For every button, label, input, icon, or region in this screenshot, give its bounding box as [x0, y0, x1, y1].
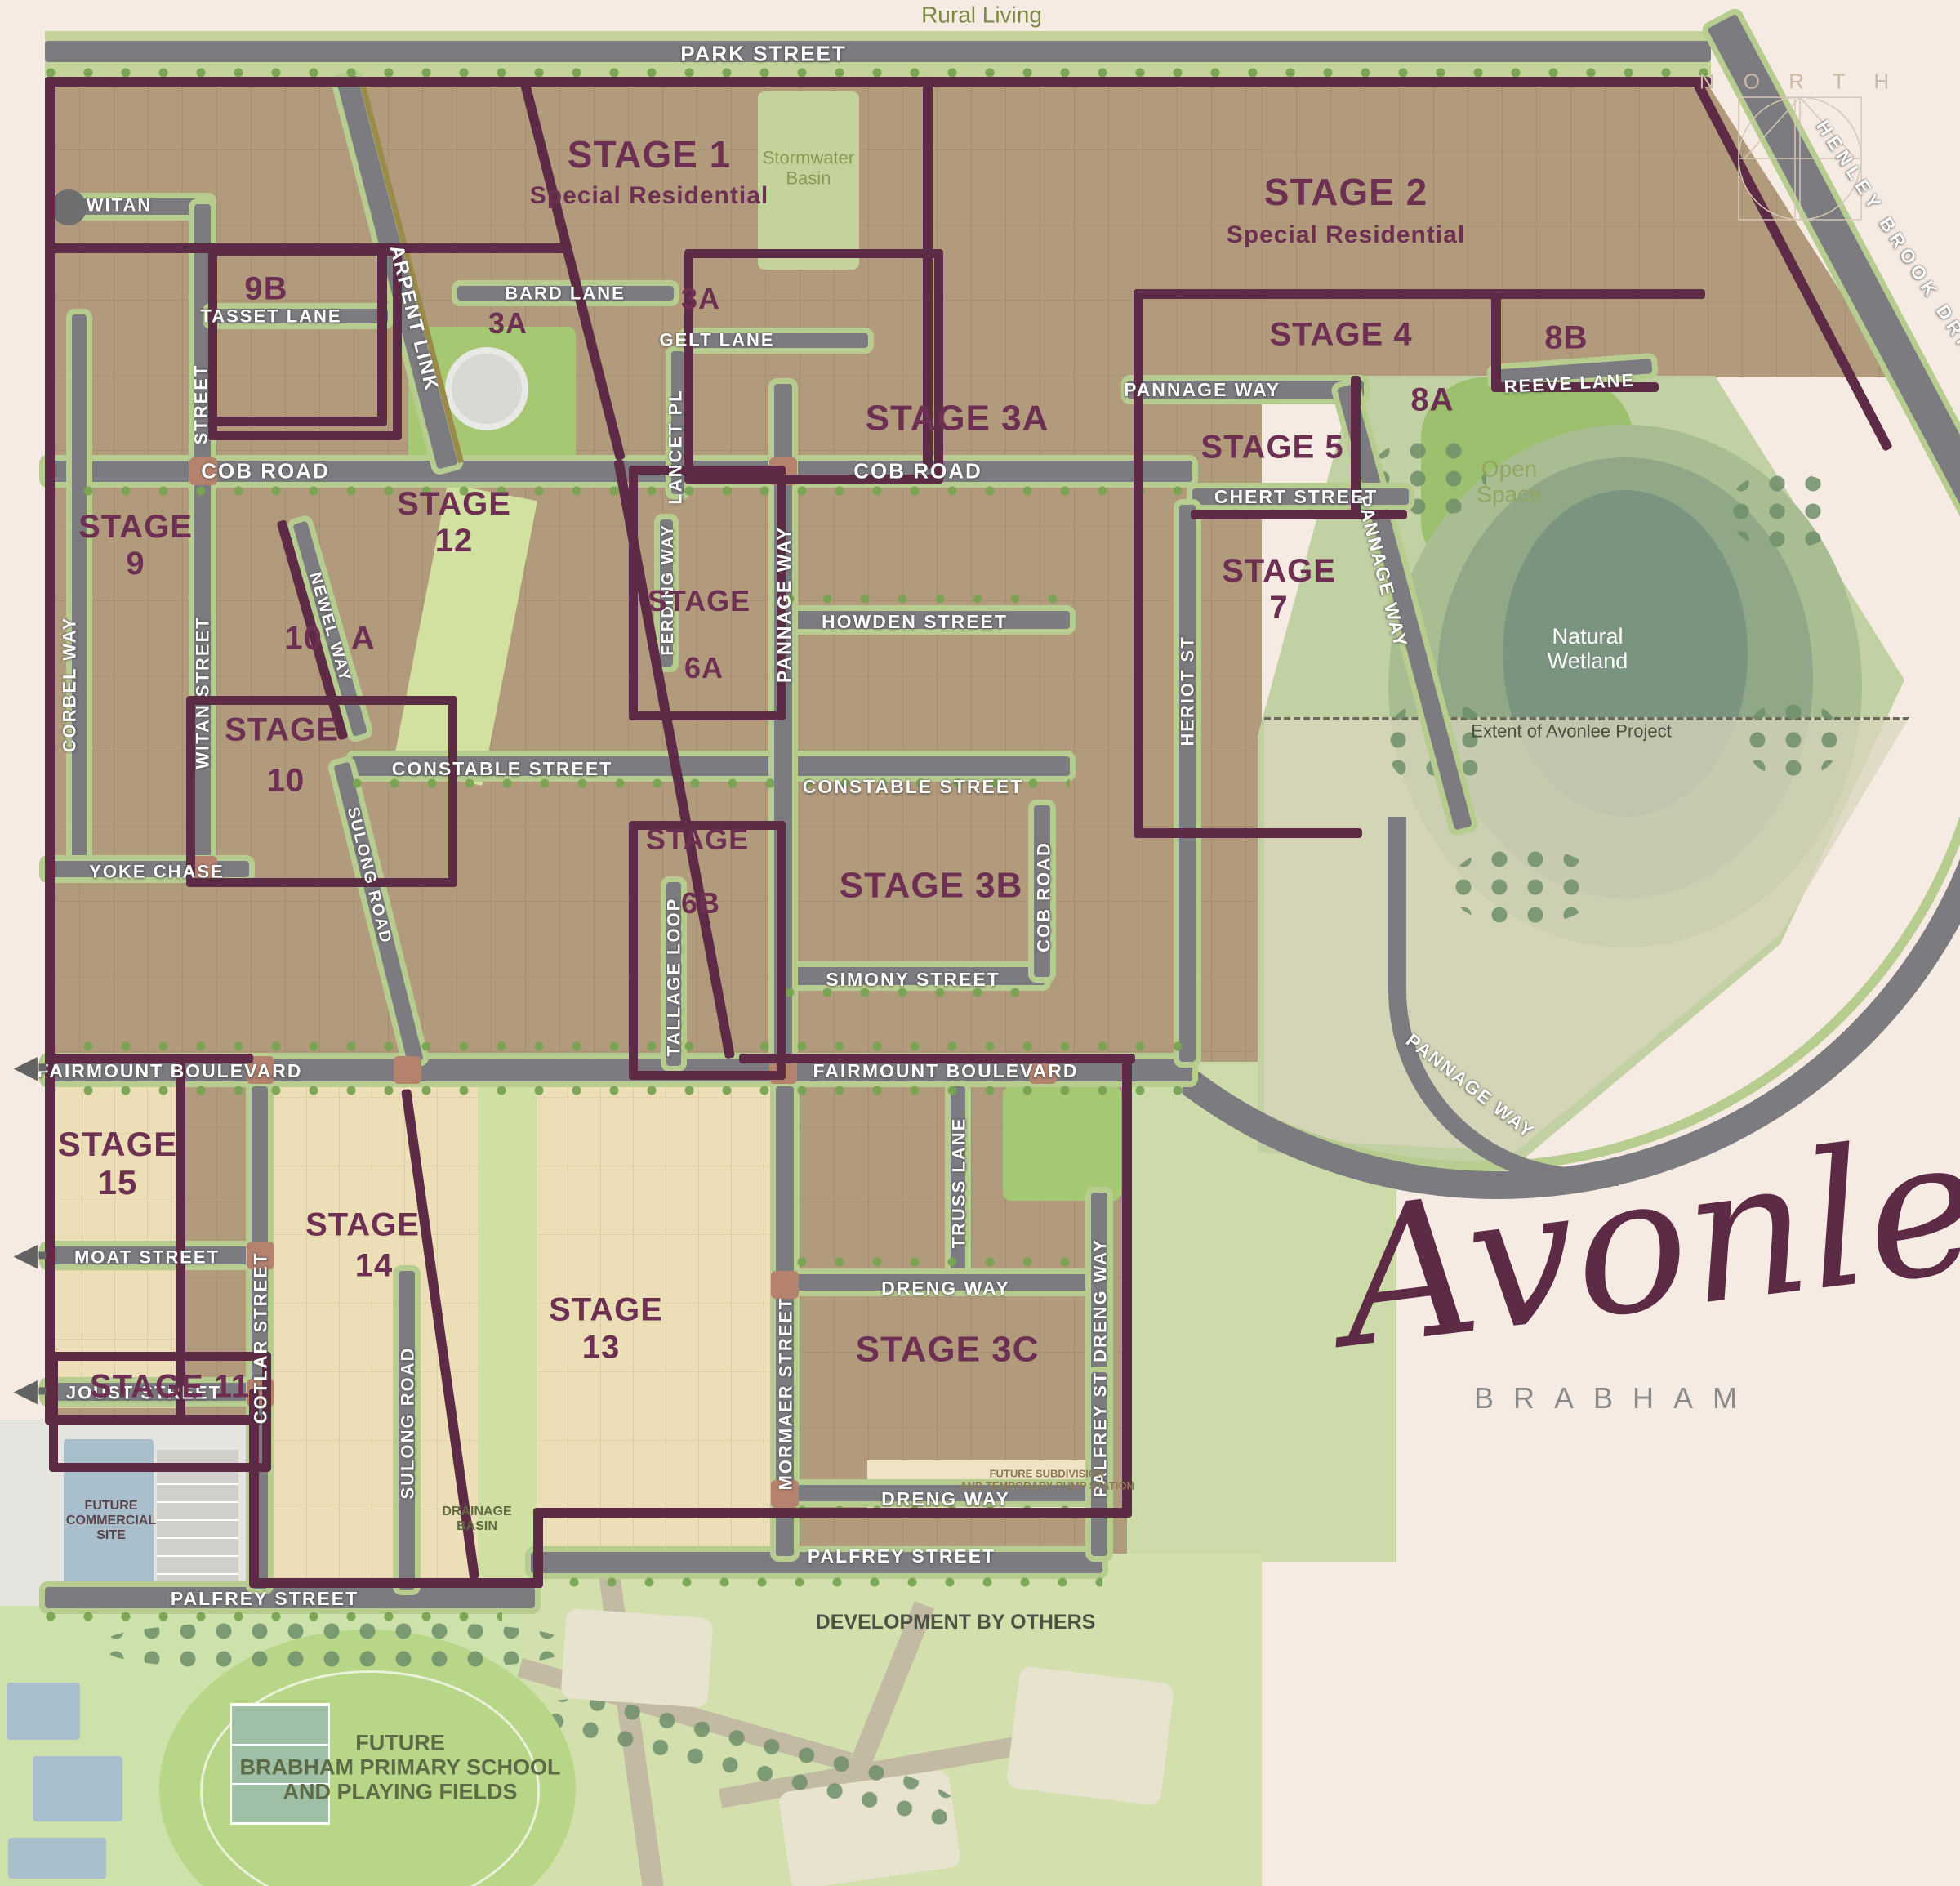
area-label: DEVELOPMENT BY OTHERS: [816, 1611, 1096, 1634]
school-trees: [106, 1621, 563, 1670]
street-label: YOKE CHASE: [89, 863, 224, 883]
street-label: PANNAGE WAY: [1124, 380, 1281, 401]
stage-label: STAGE 12: [397, 486, 511, 560]
street-label: TALLAGE LOOP: [665, 898, 685, 1057]
boundary-stage6b: [629, 821, 786, 1080]
stage-label: STAGE 3A: [866, 398, 1049, 438]
area-label: FUTURE COMMERCIAL SITE: [66, 1499, 156, 1543]
boundary-segment: [923, 77, 933, 255]
wetland-trees: [1731, 474, 1837, 547]
street-label: PALFREY STREET: [808, 1546, 996, 1567]
area-label: FUTURE BRABHAM PRIMARY SCHOOL AND PLAYIN…: [239, 1731, 560, 1805]
area-label: Stormwater Basin: [763, 148, 854, 188]
stage-label: STAGE: [646, 823, 749, 856]
street-label: DRENG WAY: [881, 1489, 1010, 1510]
street-label: CONSTABLE STREET: [392, 759, 613, 780]
area-label: Natural Wetland: [1548, 624, 1628, 673]
boundary-segment: [1134, 289, 1705, 299]
stage-label: 6A: [684, 652, 724, 684]
masterplan-map: N O R T H Avonlee BRABHAM PARK STREETWIT…: [0, 0, 1960, 1886]
dev-block: [560, 1608, 713, 1708]
street-label: PALFREY STREET: [171, 1589, 359, 1610]
street-label: PARK STREET: [680, 42, 847, 65]
stage-label: 14: [355, 1248, 394, 1285]
street-label: DRENG WAY: [1091, 1238, 1111, 1362]
stage-label: 8B: [1544, 320, 1588, 357]
road-continuation-arrow-icon: ◀▪: [15, 1374, 47, 1407]
street-label: HOWDEN STREET: [822, 612, 1008, 633]
stage-label: 10 A: [284, 621, 375, 658]
boundary-segment: [249, 1578, 543, 1588]
north-label: N O R T H: [1699, 69, 1900, 93]
logo-brabham: BRABHAM: [1474, 1382, 1757, 1415]
stage-label: Special Residential: [530, 182, 768, 210]
street-label: CONSTABLE STREET: [803, 777, 1024, 798]
boundary-segment: [1491, 289, 1501, 389]
area-label: FUTURE SUBDIVISION AND TEMPORARY PUMP ST…: [960, 1468, 1134, 1491]
street-label: COB ROAD: [853, 459, 982, 483]
road-continuation-arrow-icon: ◀▪: [15, 1238, 47, 1271]
boundary-segment: [1134, 289, 1143, 838]
stage3c-park: [1003, 1086, 1121, 1201]
street-label: CHERT STREET: [1214, 487, 1378, 508]
street-label: STREET: [192, 364, 212, 445]
street-label: CORBEL WAY: [60, 617, 81, 753]
boundary-segment: [45, 77, 1711, 87]
boundary-segment: [1134, 828, 1362, 838]
stage-label: 9B: [244, 271, 287, 308]
stage-label: STAGE 2: [1264, 172, 1428, 214]
street-label: WITAN: [87, 196, 152, 216]
intersection: [771, 1271, 799, 1299]
stage-label: STAGE 3C: [856, 1329, 1040, 1369]
witan-roundabout: [51, 189, 87, 225]
dev-block: [1006, 1665, 1175, 1806]
stage-label: STAGE: [225, 712, 339, 749]
stage-label: STAGE 15: [58, 1125, 178, 1202]
area-label: Rural Living: [921, 2, 1042, 27]
street-label: COB ROAD: [1035, 841, 1055, 952]
tree-row: [796, 1256, 1098, 1268]
street-label: TASSET LANE: [200, 307, 341, 328]
street-label: MOAT STREET: [74, 1248, 220, 1268]
boundary-segment: [537, 1508, 1129, 1518]
tree-row: [784, 593, 1070, 604]
tree-row: [45, 1041, 1192, 1052]
street-label: HERIOT ST: [1178, 635, 1199, 746]
campus-building: [8, 1838, 106, 1879]
street-label: SIMONY STREET: [826, 970, 1000, 991]
boundary-stage3a-gelt: [684, 249, 943, 484]
tree-row: [531, 1576, 1102, 1588]
street-label: MORMAER STREET: [777, 1297, 797, 1491]
stage-label: STAGE 7: [1222, 553, 1336, 626]
street-label: BARD LANE: [505, 284, 626, 305]
stage-label: 13: [582, 1330, 621, 1367]
street-label: WITAN STREET: [194, 616, 214, 769]
stage-label: STAGE 9: [78, 509, 193, 582]
road-continuation-arrow-icon: ◀▪: [15, 1050, 47, 1083]
stage-label: 8A: [1410, 382, 1454, 419]
arpent-plaza: [445, 347, 528, 430]
campus-building: [33, 1756, 122, 1821]
road-heriot: [1179, 505, 1196, 1062]
campus-building: [7, 1683, 80, 1740]
stage-label: STAGE 5: [1200, 430, 1343, 466]
street-label: COB ROAD: [201, 459, 330, 483]
area-label: Extent of Avonlee Project: [1471, 722, 1671, 742]
street-label: TRUSS LANE: [950, 1117, 970, 1249]
stage-label: 3A: [681, 283, 720, 315]
stage-label: STAGE 1: [568, 134, 731, 176]
stage-label: 6B: [681, 887, 720, 920]
street-label: PANNAGE WAY: [774, 526, 795, 683]
boundary-stage9b: [208, 247, 402, 440]
street-label: SULONG ROAD: [399, 1347, 419, 1500]
tree-row: [45, 1085, 1192, 1096]
area-label: DRAINAGE BASIN: [442, 1505, 511, 1534]
stage-label: STAGE 3B: [840, 865, 1023, 905]
stage-label: 10: [267, 763, 305, 800]
intersection: [394, 1056, 421, 1084]
stage-label: 3A: [488, 307, 528, 340]
stage-label: STAGE: [305, 1207, 420, 1244]
street-label: FAIRMOUNT BOULEVARD: [37, 1061, 302, 1082]
road-park-street: [45, 41, 1711, 62]
stage-label: STAGE: [549, 1292, 663, 1329]
stage-label: STAGE 4: [1269, 317, 1412, 354]
street-label: GELT LANE: [659, 331, 774, 351]
street-label: LANCET PL: [666, 389, 687, 504]
area-label: Open Space: [1477, 457, 1541, 508]
street-label: FAIRMOUNT BOULEVARD: [813, 1061, 1078, 1082]
stage-label: Special Residential: [1227, 221, 1465, 249]
boundary-segment: [533, 1508, 543, 1588]
road-corbel: [72, 314, 87, 870]
boundary-segment: [1122, 1054, 1132, 1518]
stage-label: STAGE: [648, 585, 751, 618]
boundary-segment: [45, 77, 55, 1425]
tree-row: [45, 1611, 502, 1622]
street-label: DRENG WAY: [881, 1278, 1010, 1300]
street-label: COTLAR STREET: [252, 1252, 272, 1425]
stage-label: STAGE 11: [90, 1369, 250, 1406]
